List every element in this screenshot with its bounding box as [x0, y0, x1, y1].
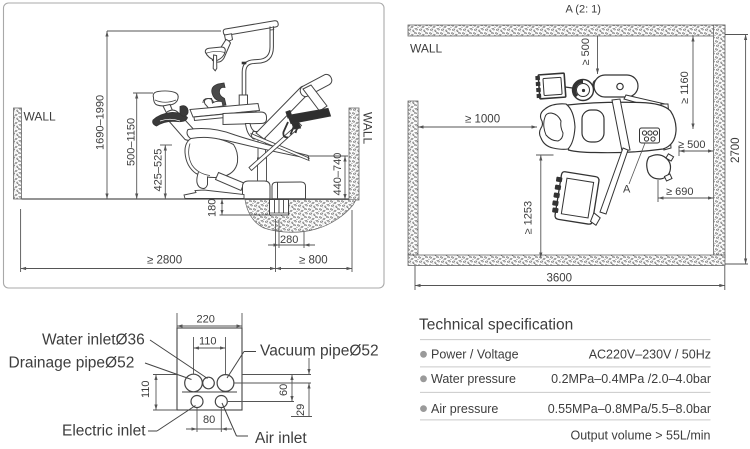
- svg-text:0.2MPa–0.4MPa /2.0–4.0bar: 0.2MPa–0.4MPa /2.0–4.0bar: [551, 372, 711, 386]
- svg-text:Output volume > 55L/min: Output volume > 55L/min: [570, 429, 710, 443]
- svg-text:Air pressure: Air pressure: [431, 402, 498, 416]
- svg-text:Power / Voltage: Power / Voltage: [431, 348, 519, 362]
- svg-text:Water pressure: Water pressure: [431, 372, 516, 386]
- svg-text:AC220V–230V / 50Hz: AC220V–230V / 50Hz: [589, 348, 711, 362]
- svg-text:0.55MPa–0.8MPa/5.5–8.0bar: 0.55MPa–0.8MPa/5.5–8.0bar: [548, 402, 711, 416]
- svg-text:Technical specification: Technical specification: [419, 317, 573, 334]
